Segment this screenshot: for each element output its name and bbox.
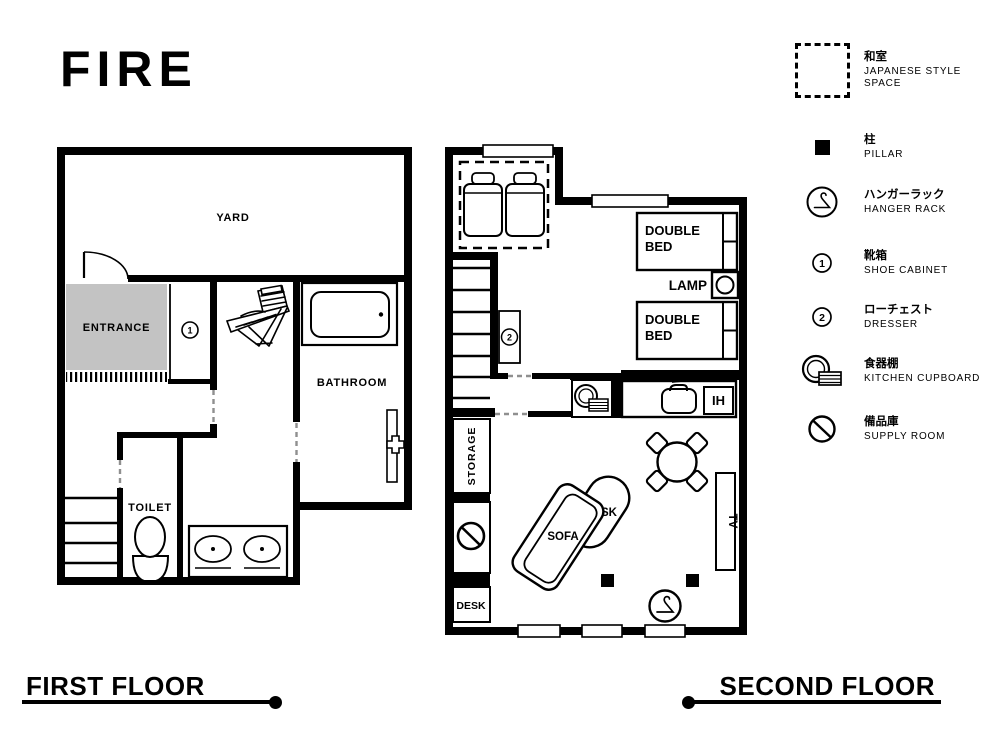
legend-item-japanese-style-space: 和室 JAPANESE STYLE SPACE	[780, 42, 998, 98]
lounge-chair-icon	[227, 286, 289, 347]
legend-item-pillar: 柱 PILLAR	[780, 134, 998, 161]
shoe-cabinet-legend-number: 1	[819, 258, 825, 270]
sliding-door-markers-2f	[495, 376, 532, 414]
legend-jp-label: 食器棚	[864, 358, 980, 371]
legend-en-label: DRESSER	[864, 319, 933, 331]
lamp-icon	[712, 272, 738, 298]
shoe-room-wall-bottom	[168, 379, 212, 384]
double-bed-1-label-line2: BED	[645, 239, 672, 254]
stairs-first-floor	[65, 498, 117, 563]
storage-closet: STORAGE	[453, 419, 490, 493]
dresser-icon: 2	[811, 306, 833, 328]
legend-jp-label: 柱	[864, 134, 903, 147]
sofa-label: SOFA	[547, 531, 578, 543]
futon-icons	[464, 173, 544, 236]
supply-room-closet	[453, 502, 490, 573]
japanese-style-space-icon	[795, 43, 850, 98]
entrance-step-hatch	[66, 372, 167, 382]
pillar-marker	[601, 574, 614, 587]
sliding-door-markers	[120, 390, 297, 488]
double-bed-1: DOUBLE BED	[637, 213, 737, 270]
supply-room-icon	[807, 414, 837, 444]
first-floor-plan: 1	[57, 147, 412, 585]
tv-board: TV	[716, 473, 738, 570]
double-bed-2-label-line2: BED	[645, 328, 672, 343]
pillar-icon	[815, 140, 830, 155]
legend-item-shoe-cabinet: 1 靴箱 SHOE CABINET	[780, 247, 998, 279]
tv-label: TV	[726, 514, 738, 529]
second-floor-underline	[691, 700, 941, 704]
legend-item-hanger-rack: ハンガーラック HANGER RACK	[780, 186, 998, 218]
pillar-marker	[686, 574, 699, 587]
legend-item-supply-room: 備品庫 SUPPLY ROOM	[780, 413, 998, 445]
legend-item-dresser: 2 ローチェスト DRESSER	[780, 301, 998, 333]
toilet-label: TOILET	[128, 502, 172, 514]
legend-jp-label: ハンガーラック	[864, 189, 946, 202]
bathtub-icon	[302, 283, 397, 345]
hanger-rack-icon	[805, 185, 839, 219]
second-floor-label: SECOND FLOOR	[685, 671, 935, 702]
storage-label: STORAGE	[466, 427, 478, 486]
kitchen-cupboard-icon	[572, 380, 612, 417]
vanity-sink-icon	[189, 526, 287, 577]
desk-closet-label: DESK	[456, 600, 486, 612]
first-floor-underline	[22, 700, 271, 704]
first-floor-underline-dot	[269, 696, 282, 709]
shoe-cabinet-number: 1	[187, 326, 192, 336]
entrance-label: ENTRANCE	[83, 322, 151, 334]
legend-en-label: HANGER RACK	[864, 204, 946, 216]
hanger-rack-icon	[650, 591, 681, 622]
dresser-number: 2	[507, 333, 512, 343]
toilet-icon	[133, 517, 168, 581]
bathroom-label: BATHROOM	[317, 377, 387, 389]
kitchen-counter: IH	[622, 381, 736, 417]
first-floor-label: FIRST FLOOR	[26, 671, 205, 702]
lamp-label: LAMP	[669, 278, 707, 293]
yard-label: YARD	[216, 212, 249, 224]
legend-jp-label: 靴箱	[864, 250, 948, 263]
entrance-door-icon	[84, 252, 128, 279]
legend-jp-label: 和室	[864, 51, 998, 64]
bath-fixture-icon	[387, 410, 404, 482]
legend-en-label: KITCHEN CUPBOARD	[864, 373, 980, 385]
dresser-icon: 2	[499, 311, 520, 363]
legend-item-kitchen-cupboard: 食器棚 KITCHEN CUPBOARD	[780, 352, 998, 390]
legend-jp-label: 備品庫	[864, 416, 945, 429]
floorplan-page: FIRE	[0, 0, 1000, 750]
second-floor-underline-dot	[682, 696, 695, 709]
kitchen-cupboard-icon	[801, 353, 843, 389]
sink-icon	[662, 389, 696, 413]
dining-set-icon	[646, 432, 709, 493]
double-bed-1-label-line1: DOUBLE	[645, 223, 700, 238]
double-bed-2: DOUBLE BED	[637, 302, 737, 359]
legend-jp-label: ローチェスト	[864, 304, 933, 317]
legend-en-label: PILLAR	[864, 149, 903, 161]
dresser-legend-number: 2	[819, 312, 825, 324]
second-floor-plan: DOUBLE BED LAMP DOUBLE BED 2	[445, 145, 747, 637]
legend-en-label: JAPANESE STYLE SPACE	[864, 66, 998, 90]
desk-closet: DESK	[453, 587, 490, 622]
legend-en-label: SHOE CABINET	[864, 265, 948, 277]
ih-label: IH	[712, 393, 725, 408]
legend-en-label: SUPPLY ROOM	[864, 431, 945, 443]
stairs-second-floor	[453, 268, 490, 398]
shoe-cabinet-icon: 1	[811, 252, 833, 274]
double-bed-2-label-line1: DOUBLE	[645, 312, 700, 327]
